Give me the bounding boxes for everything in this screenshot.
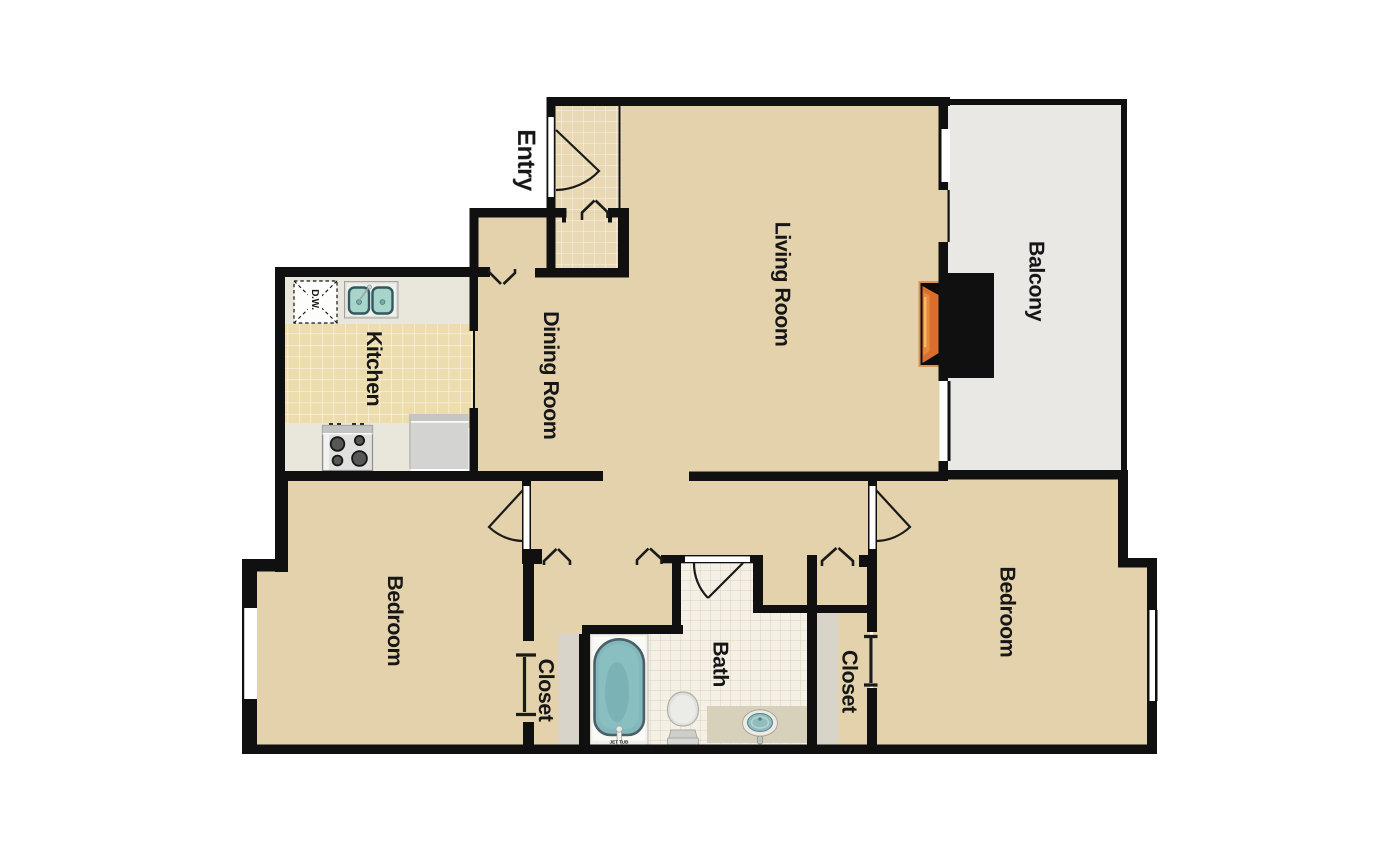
svg-text:JET TUB: JET TUB [610,740,630,745]
svg-text:Dining Room: Dining Room [539,311,563,439]
svg-text:Kitchen: Kitchen [362,331,386,406]
svg-text:D.W.: D.W. [309,289,320,310]
svg-text:Closet: Closet [838,650,862,713]
svg-text:Bedroom: Bedroom [383,575,407,666]
svg-text:Closet: Closet [534,659,558,722]
svg-text:Bath: Bath [709,641,733,687]
svg-text:Living Room: Living Room [771,222,795,347]
svg-text:Balcony: Balcony [1025,241,1049,322]
svg-text:Bedroom: Bedroom [995,566,1019,657]
svg-text:Entry: Entry [512,129,540,191]
